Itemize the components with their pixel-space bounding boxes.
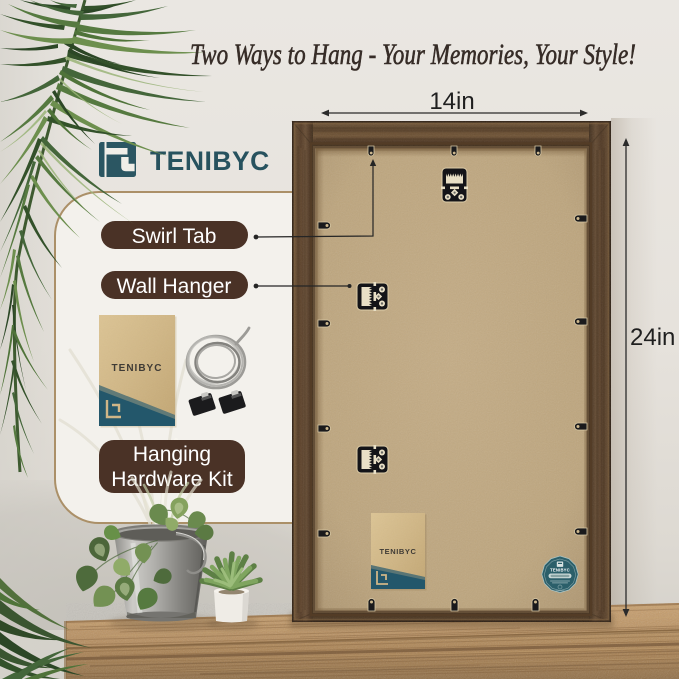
svg-text:Wall Hanger: Wall Hanger bbox=[117, 275, 232, 298]
svg-text:Swirl Tab: Swirl Tab bbox=[132, 225, 217, 248]
svg-text:Two Ways to Hang - Your Memori: Two Ways to Hang - Your Memories, Your S… bbox=[190, 38, 636, 71]
svg-text:Hanging: Hanging bbox=[133, 443, 211, 466]
svg-text:TENIBYC: TENIBYC bbox=[112, 363, 163, 374]
svg-text:TENIBYC: TENIBYC bbox=[379, 547, 416, 556]
svg-text:TENIBYC: TENIBYC bbox=[550, 568, 570, 573]
svg-text:14in: 14in bbox=[429, 88, 474, 115]
svg-text:24in: 24in bbox=[630, 324, 675, 351]
svg-text:TENIBYC: TENIBYC bbox=[150, 146, 270, 176]
